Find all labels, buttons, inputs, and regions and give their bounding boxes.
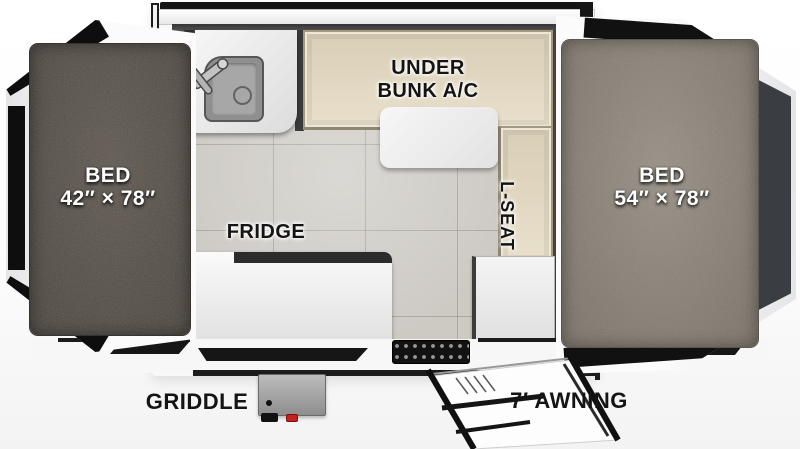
label-under-bunk-line2: BUNK A/C <box>348 80 508 103</box>
label-bed-left: BED 42″ × 78″ <box>28 164 188 210</box>
fridge-counter <box>188 252 392 345</box>
label-fridge: FRIDGE <box>201 221 331 244</box>
l-seat-cabinet <box>472 256 555 342</box>
label-bed-right-name: BED <box>582 164 742 187</box>
label-under-bunk-ac: UNDER BUNK A/C <box>348 57 508 103</box>
dinette-table <box>380 107 498 168</box>
counter-backsplash <box>234 252 392 263</box>
label-bed-right: BED 54″ × 78″ <box>582 164 742 210</box>
bed-end-left-canvas-side <box>8 106 25 270</box>
floorplan-canvas: BED 42″ × 78″ BED 54″ × 78″ UNDER BUNK A… <box>0 0 800 449</box>
wall-inset-center <box>198 348 368 361</box>
griddle-knob-red <box>286 414 298 422</box>
label-awning: 7′ AWNING <box>484 389 654 412</box>
label-griddle: GRIDDLE <box>122 390 272 413</box>
label-l-seat: L-SEAT <box>487 174 527 258</box>
label-bed-left-name: BED <box>28 164 188 187</box>
griddle-knob-black <box>261 413 278 422</box>
roof-latch-right <box>580 2 593 17</box>
label-bed-left-size: 42″ × 78″ <box>28 187 188 210</box>
label-bed-right-size: 54″ × 78″ <box>582 187 742 210</box>
label-under-bunk-line1: UNDER <box>348 57 508 80</box>
roof-front-wall <box>155 9 595 25</box>
